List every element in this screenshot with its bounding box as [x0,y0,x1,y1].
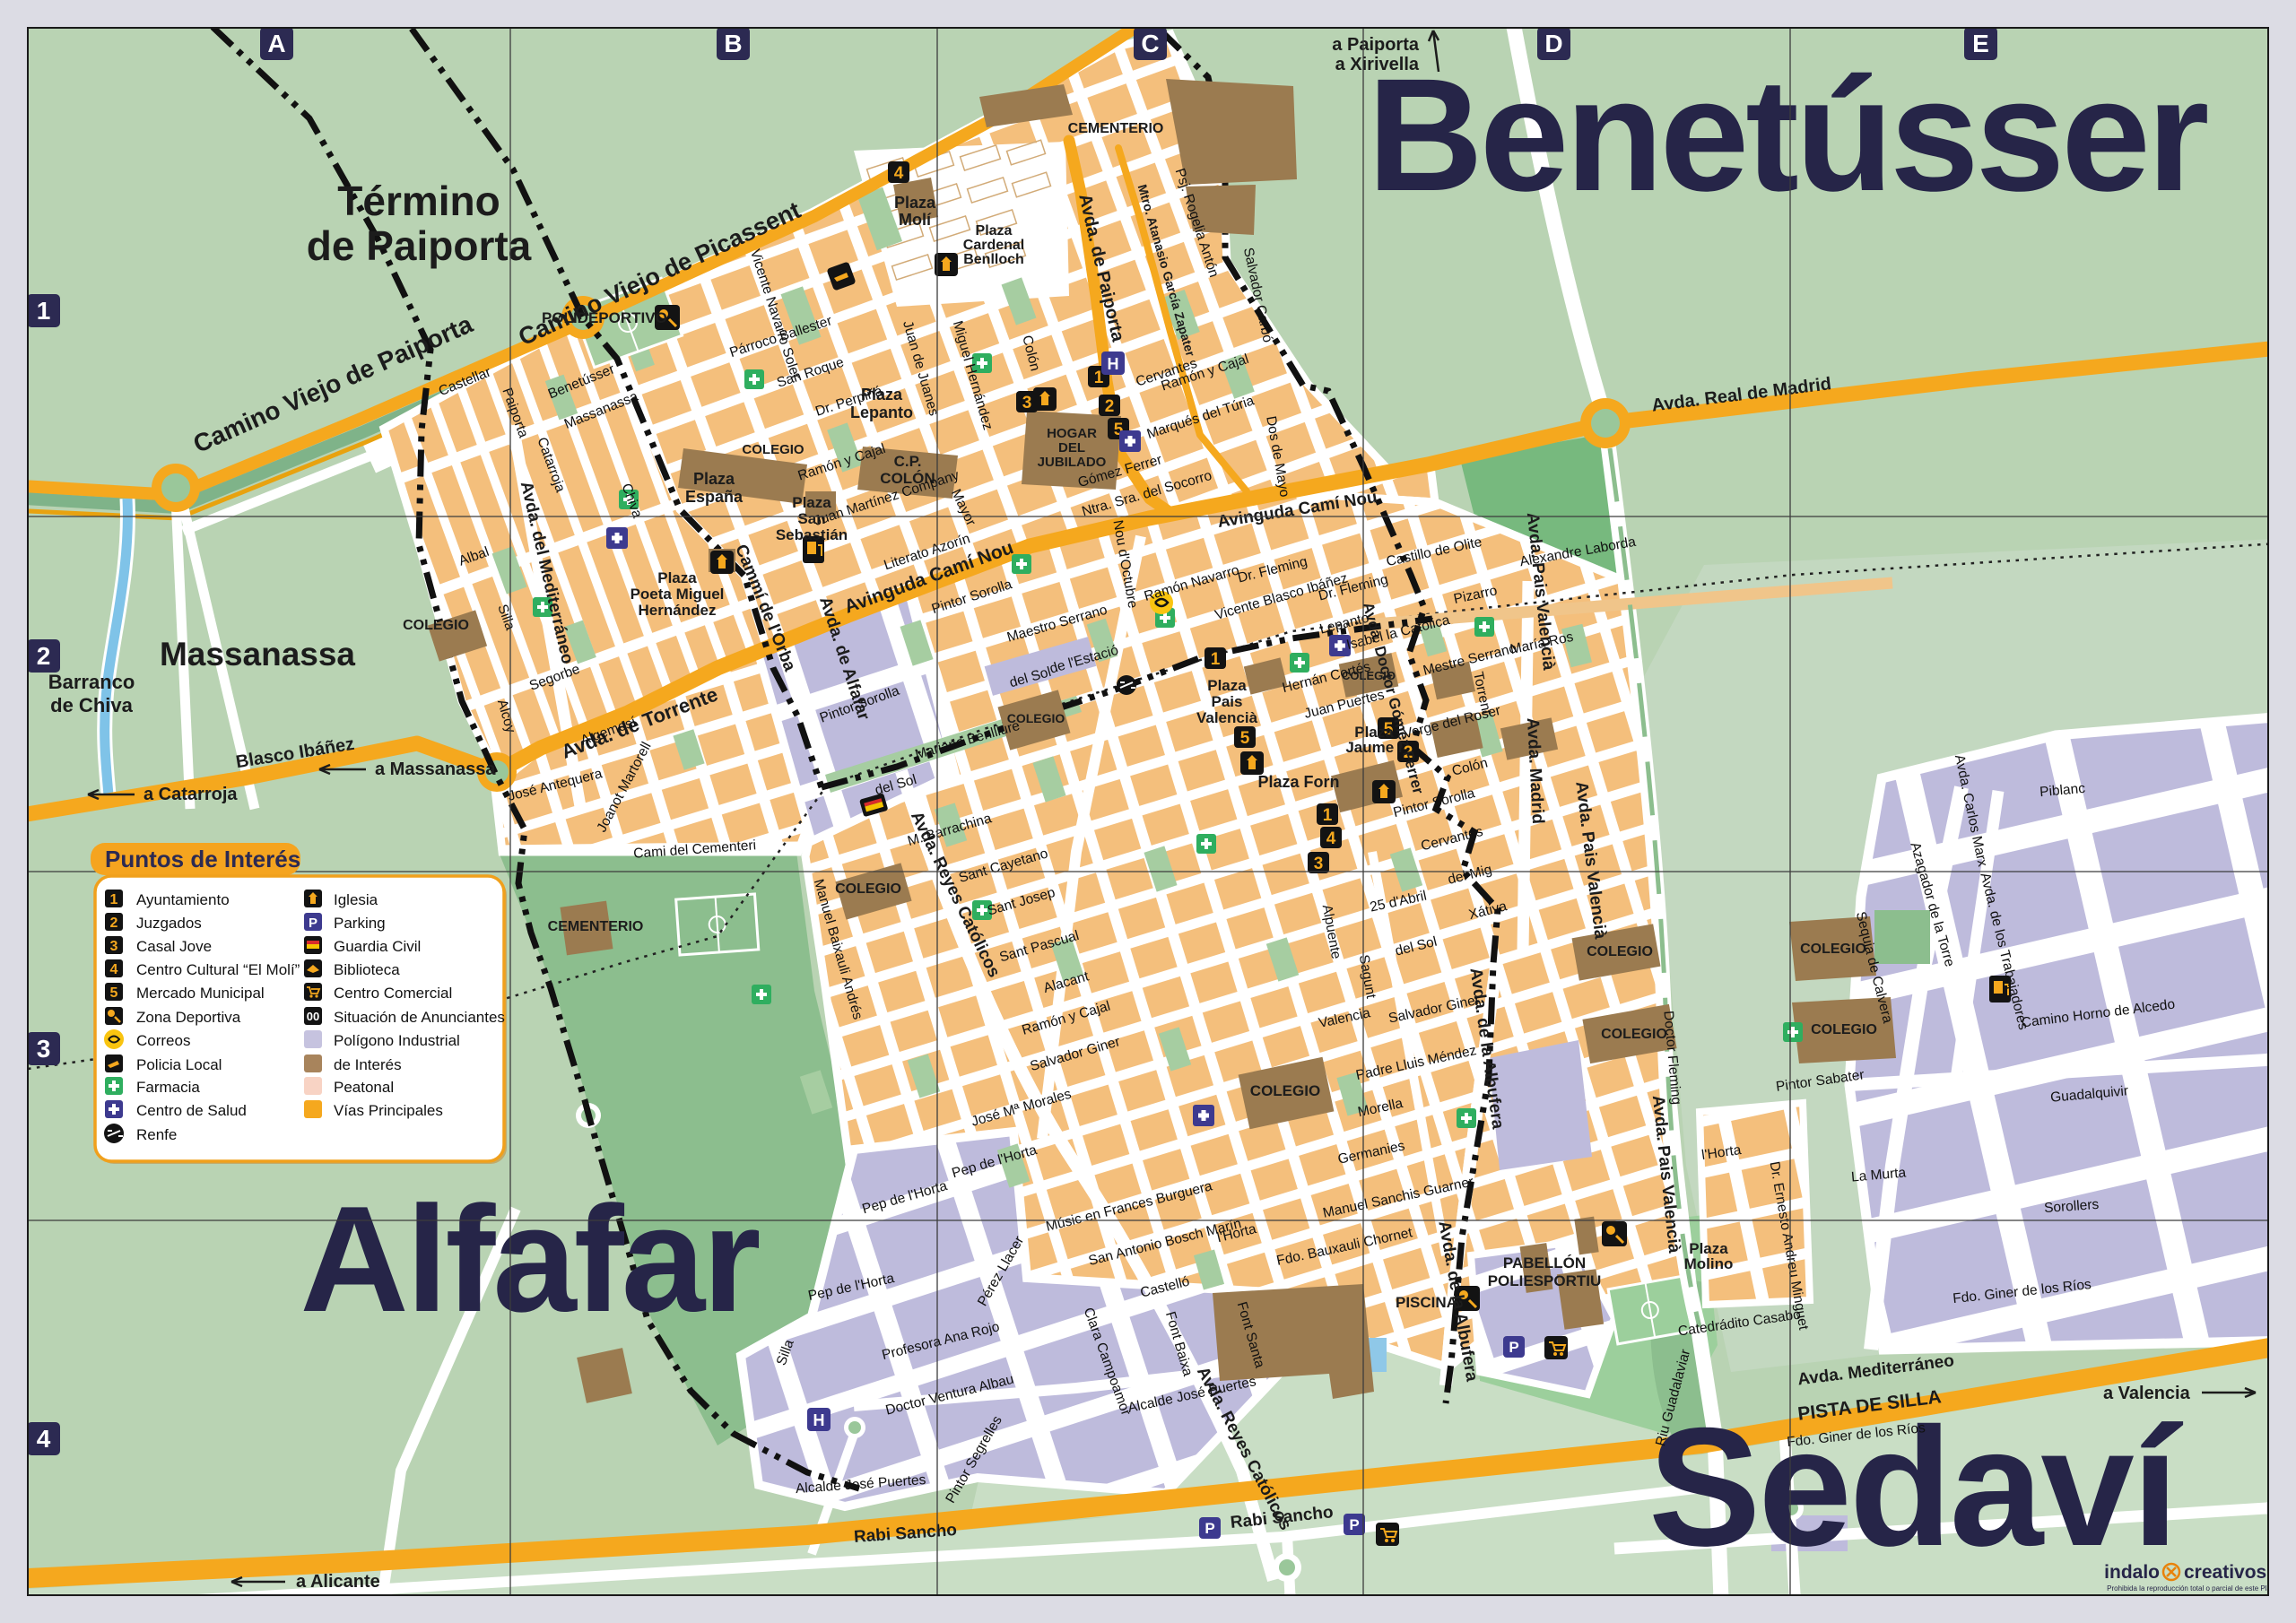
svg-text:Plaza: Plaza [1207,677,1247,694]
svg-text:COLEGIO: COLEGIO [1587,944,1653,959]
svg-text:Plaza: Plaza [894,194,936,212]
svg-text:COLEGIO: COLEGIO [835,881,901,897]
svg-text:de Paiporta: de Paiporta [307,222,532,269]
svg-text:2: 2 [110,916,118,931]
svg-text:E: E [1972,30,1989,57]
svg-text:P: P [1205,1520,1214,1537]
svg-text:Poeta Miguel: Poeta Miguel [631,586,725,603]
svg-text:Massanassa: Massanassa [160,636,355,673]
svg-text:Benlloch: Benlloch [963,252,1024,267]
svg-text:Zona Deportiva: Zona Deportiva [136,1009,241,1026]
svg-text:3: 3 [1314,855,1324,873]
svg-text:Cardenal: Cardenal [963,238,1024,253]
svg-text:Policia Local: Policia Local [136,1056,222,1073]
svg-text:4: 4 [894,164,904,183]
svg-text:creativos: creativos [2184,1562,2266,1583]
svg-text:Pais: Pais [1212,693,1243,710]
svg-text:Mercado Municipal: Mercado Municipal [136,985,265,1002]
svg-text:CEMENTERIO: CEMENTERIO [548,919,644,934]
svg-text:4: 4 [1326,829,1336,848]
svg-text:Molino: Molino [1684,1255,1734,1272]
svg-text:Benetússer: Benetússer [1368,45,2207,224]
svg-text:POLIESPORTIU: POLIESPORTIU [1488,1272,1602,1289]
svg-text:Plaza: Plaza [976,223,1013,239]
svg-text:Alfafar: Alfafar [300,1175,759,1343]
svg-text:1: 1 [37,297,51,325]
svg-text:Renfe: Renfe [136,1126,177,1143]
svg-text:PISCINA: PISCINA [1396,1294,1457,1311]
svg-text:a Valencia: a Valencia [2103,1384,2191,1403]
svg-text:COLEGIO: COLEGIO [1811,1022,1877,1037]
svg-text:PABELLÓN: PABELLÓN [1503,1254,1586,1271]
svg-text:2: 2 [37,642,51,670]
svg-text:P: P [309,916,317,931]
svg-text:Barranco: Barranco [48,671,135,693]
svg-text:Lepanto: Lepanto [850,404,913,421]
svg-text:a Xirivella: a Xirivella [1335,55,1420,74]
svg-text:Juzgados: Juzgados [136,915,202,932]
svg-text:4: 4 [110,962,118,977]
svg-text:Centro Comercial: Centro Comercial [334,985,452,1002]
svg-text:Iglesia: Iglesia [334,891,378,908]
svg-text:Casal Jove: Casal Jove [136,938,212,955]
svg-text:a Catarroja: a Catarroja [143,785,238,804]
svg-text:P: P [1509,1339,1518,1356]
svg-text:DEL: DEL [1058,440,1085,456]
svg-text:Plaza: Plaza [693,470,735,488]
svg-text:1: 1 [1211,650,1221,669]
svg-text:Situación de Anunciantes: Situación de Anunciantes [334,1009,505,1026]
svg-text:Parking: Parking [334,915,386,932]
svg-text:Molí: Molí [899,211,932,229]
svg-text:Plaza Forn: Plaza Forn [1257,773,1339,791]
svg-text:Polígono Industrial: Polígono Industrial [334,1032,460,1049]
svg-text:Plaza: Plaza [657,569,697,586]
svg-text:3: 3 [1022,394,1032,412]
svg-text:5: 5 [110,985,118,1001]
svg-text:CEMENTERIO: CEMENTERIO [1068,121,1164,136]
svg-text:a Paiporta: a Paiporta [1332,35,1420,55]
svg-text:Sebastián: Sebastián [776,526,848,543]
svg-text:2: 2 [1105,397,1115,416]
svg-text:Guardia Civil: Guardia Civil [334,938,421,955]
svg-text:COLEGIO: COLEGIO [1800,942,1866,957]
svg-text:JUBILADO: JUBILADO [1038,455,1107,470]
svg-text:HOGAR: HOGAR [1047,426,1097,441]
svg-text:Prohibida la reproducción tota: Prohibida la reproducción total o parcia… [2107,1584,2279,1593]
svg-text:H: H [813,1411,825,1429]
svg-text:Jaume I: Jaume I [1345,739,1402,756]
svg-text:Centro de Salud: Centro de Salud [136,1102,247,1119]
svg-text:Ayuntamiento: Ayuntamiento [136,891,230,908]
svg-text:B: B [724,30,742,57]
svg-text:Puntos de Interés: Puntos de Interés [105,846,300,872]
svg-text:COLEGIO: COLEGIO [742,442,804,457]
svg-text:A: A [267,30,285,57]
svg-text:Centro Cultural “El Molí”: Centro Cultural “El Molí” [136,961,300,978]
svg-text:1: 1 [110,892,118,907]
svg-text:4: 4 [37,1425,51,1453]
svg-text:1: 1 [1323,806,1333,825]
svg-text:Farmacia: Farmacia [136,1079,200,1096]
svg-text:a Alicante: a Alicante [296,1572,380,1592]
svg-text:de Interés: de Interés [334,1056,402,1073]
svg-text:COLEGIO: COLEGIO [1250,1082,1320,1099]
svg-text:Valencià: Valencià [1196,709,1258,726]
svg-text:a Massanassa: a Massanassa [375,759,496,779]
svg-text:Vías Principales: Vías Principales [334,1102,443,1119]
svg-text:Término: Término [337,178,500,224]
svg-text:COLEGIO: COLEGIO [1601,1027,1667,1042]
svg-text:Peatonal: Peatonal [334,1079,394,1096]
svg-text:5: 5 [1240,729,1250,748]
svg-text:España: España [685,488,744,506]
svg-text:POLIDEPORTIVO: POLIDEPORTIVO [542,309,667,326]
svg-text:Hernández: Hernández [639,602,717,619]
svg-text:COLEGIO: COLEGIO [403,618,469,633]
svg-text:C: C [1141,30,1159,57]
svg-text:de Chiva: de Chiva [50,694,133,716]
svg-text:00: 00 [307,1010,319,1023]
svg-text:C.P.: C.P. [894,453,922,470]
svg-text:D: D [1544,30,1562,57]
svg-text:Correos: Correos [136,1032,190,1049]
svg-text:indalo: indalo [2104,1562,2160,1583]
svg-text:Biblioteca: Biblioteca [334,961,400,978]
svg-text:3: 3 [110,939,118,954]
svg-text:H: H [1108,355,1119,373]
svg-text:P: P [1349,1516,1359,1533]
svg-text:Plaza: Plaza [792,494,831,511]
svg-text:3: 3 [37,1035,51,1063]
